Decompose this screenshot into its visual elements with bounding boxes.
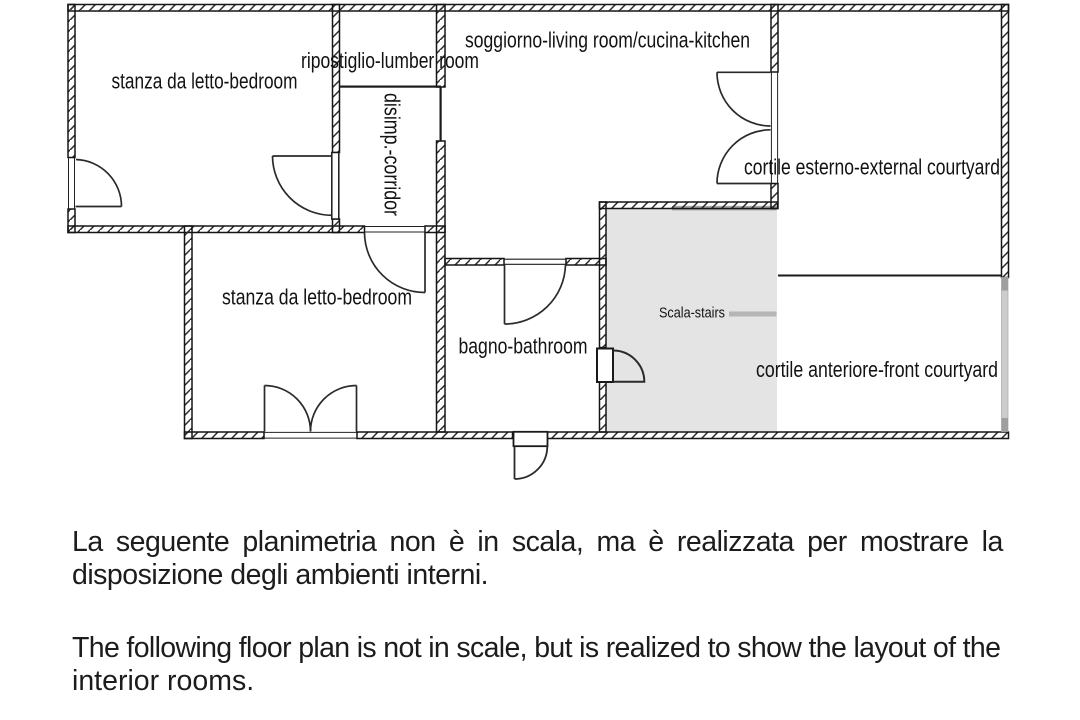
svg-text:ripostiglio-lumber room: ripostiglio-lumber room (301, 48, 479, 73)
svg-text:cortile esterno-external court: cortile esterno-external courtyard (744, 155, 1000, 180)
svg-text:stanza da letto-bedroom: stanza da letto-bedroom (222, 285, 412, 310)
svg-text:bagno-bathroom: bagno-bathroom (459, 334, 588, 359)
svg-text:stanza da letto-bedroom: stanza da letto-bedroom (112, 69, 298, 94)
svg-text:soggiorno-living room/cucina-k: soggiorno-living room/cucina-kitchen (465, 28, 750, 53)
svg-text:cortile anteriore-front courty: cortile anteriore-front courtyard (756, 357, 998, 382)
svg-text:disimp.-corridor: disimp.-corridor (380, 93, 405, 216)
svg-text:Scala-stairs: Scala-stairs (659, 305, 725, 322)
